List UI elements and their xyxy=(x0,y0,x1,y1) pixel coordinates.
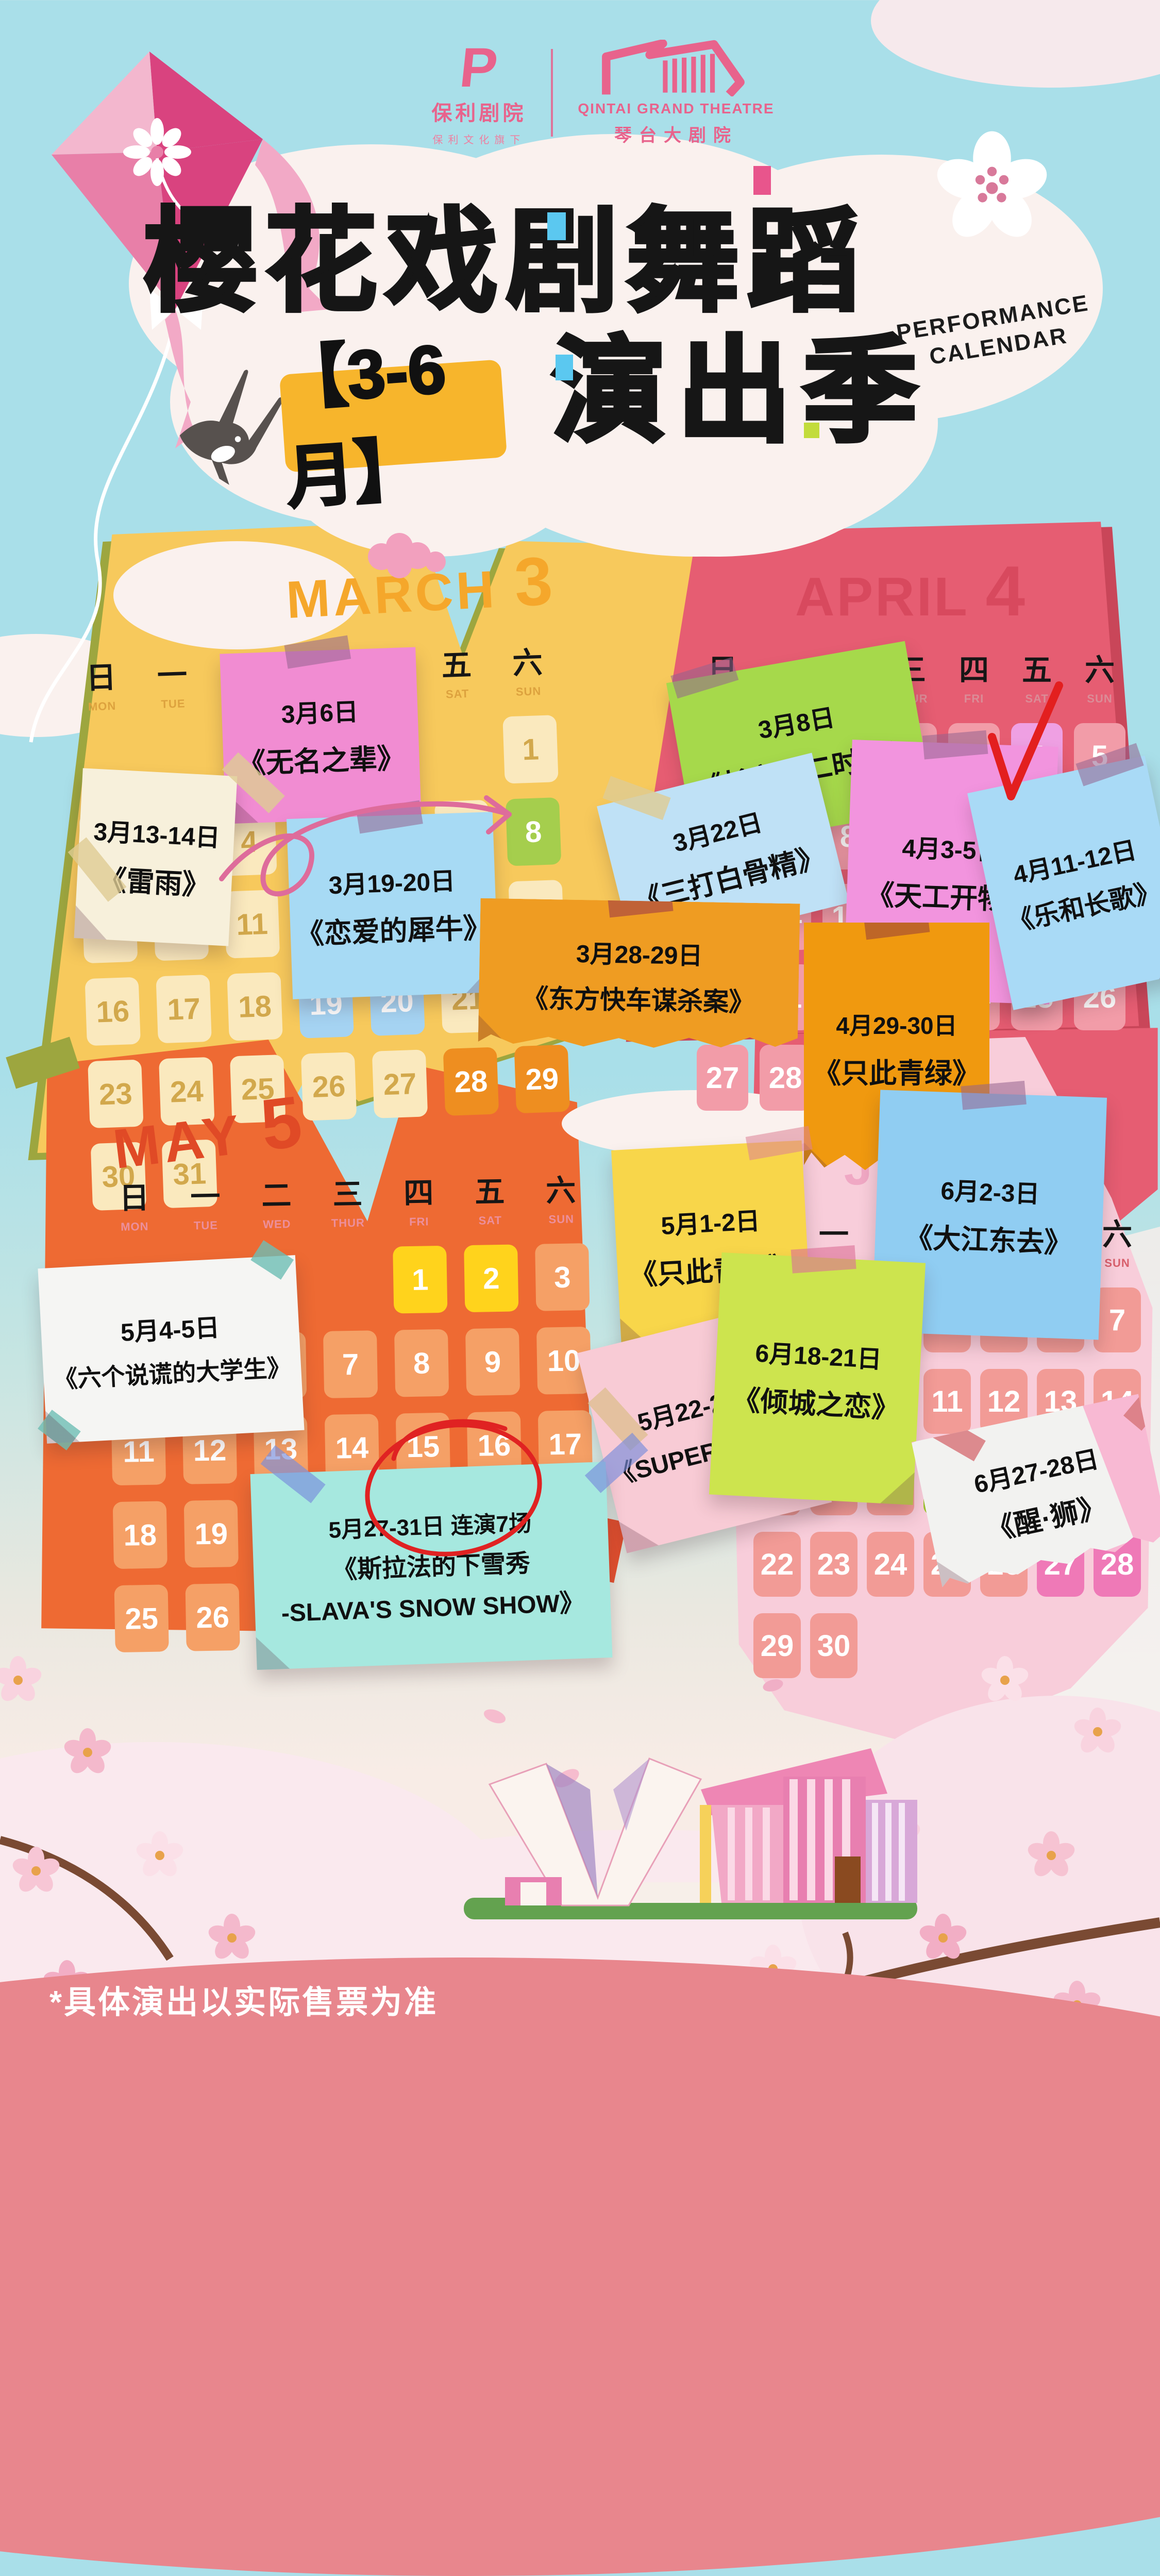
sticky-note-jun-qingcheng: 6月18-21日《倾城之恋》 xyxy=(709,1252,926,1505)
note-date: 5月27-31日 连演7场 xyxy=(328,1504,532,1545)
sticky-note-jun-xingshi: 6月27-28日《醒·狮》 xyxy=(912,1394,1160,1593)
tape-icon xyxy=(260,1445,325,1503)
tape-icon xyxy=(1075,743,1144,787)
note-date: 5月4-5日 xyxy=(120,1307,220,1348)
tape-icon xyxy=(922,730,988,760)
note-title: -SLAVA'S SNOW SHOW》 xyxy=(280,1582,584,1629)
note-date: 3月8日 xyxy=(755,697,837,746)
tape-icon xyxy=(961,1081,1027,1110)
note-title: 《六个说谎的大学生》 xyxy=(53,1349,292,1395)
sticky-note-mar-lianai: 3月19-20日《恋爱的犀牛》 xyxy=(287,812,499,999)
tape-icon xyxy=(284,635,351,669)
note-date: 3月13-14日 xyxy=(93,811,221,854)
sticky-note-mar-leiyu: 3月13-14日《雷雨》 xyxy=(74,768,238,946)
tape-icon xyxy=(1123,1366,1160,1431)
note-date: 6月2-3日 xyxy=(940,1170,1040,1210)
note-date: 6月18-21日 xyxy=(754,1332,883,1375)
tape-icon xyxy=(603,776,671,820)
footer-disclaimer: *具体演出以实际售票为准 xyxy=(49,1976,438,2022)
note-date: 5月1-2日 xyxy=(660,1200,761,1242)
note-date: 3月6日 xyxy=(280,691,359,730)
theatre-building-illustration xyxy=(443,1728,959,1949)
note-title: 《恋爱的犀牛》 xyxy=(295,905,492,952)
note-date: 4月29-30日 xyxy=(836,1007,957,1041)
tape-icon xyxy=(38,1410,81,1451)
tape-icon xyxy=(745,1126,812,1160)
sticky-note-mar-dongfang: 3月28-29日《东方快车谋杀案》 xyxy=(478,898,800,1053)
note-date: 3月19-20日 xyxy=(328,860,456,901)
note-date: 3月28-29日 xyxy=(576,933,703,972)
tape-icon xyxy=(791,1245,856,1274)
note-title: 《只此青绿》 xyxy=(813,1050,980,1091)
sticky-note-may-slava: 5月27-31日 连演7场《斯拉法的下雪秀-SLAVA'S SNOW SHOW》 xyxy=(250,1462,613,1670)
poster: P 保利剧院 保利文化旗下 QINTAI GRAND THEATRE 琴台大剧院 xyxy=(0,0,1160,2062)
note-title: 《倾城之恋》 xyxy=(732,1377,901,1426)
tape-icon xyxy=(918,1409,985,1461)
sticky-note-may-liuge: 5月4-5日《六个说谎的大学生》 xyxy=(38,1255,304,1444)
note-title: 《大江东去》 xyxy=(904,1214,1073,1261)
sticky-note-mar-wuming: 3月6日《无名之辈》 xyxy=(220,647,421,824)
tape-icon xyxy=(670,657,738,698)
footer-hill xyxy=(0,1958,1160,2576)
tape-icon xyxy=(250,1240,294,1280)
note-title: 《东方快车谋杀案》 xyxy=(523,978,755,1019)
note-title: 《斯拉法的下雪秀 xyxy=(332,1543,531,1585)
